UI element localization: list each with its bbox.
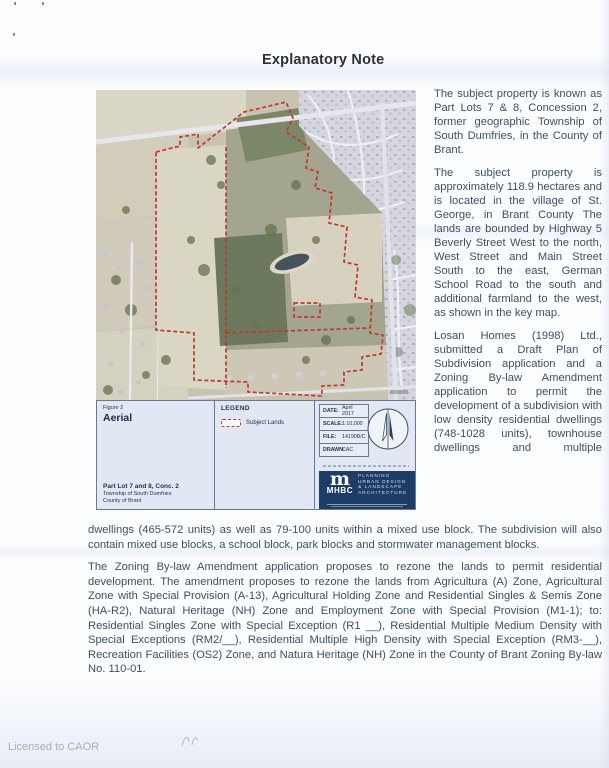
mhbc-tagline-line: ARCHITECTURE xyxy=(358,490,407,496)
scan-speck xyxy=(13,33,15,36)
figure-id-cell: Figure 2 Aerial Part Lot 7 and 8, Conc. … xyxy=(97,401,215,509)
aerial-figure: Figure 2 Aerial Part Lot 7 and 8, Conc. … xyxy=(96,90,416,510)
paragraph: The subject property is known as Part Lo… xyxy=(434,87,602,157)
mhbc-tagline: PLANNING URBAN DESIGN & LANDSCAPE ARCHIT… xyxy=(358,473,407,495)
legend-entry: Subject Lands xyxy=(221,419,308,427)
location-county: County of Brant xyxy=(103,498,179,504)
fine-print-disclaimer xyxy=(323,465,409,467)
mhbc-brand: MHBC xyxy=(327,486,353,495)
legend-cell: LEGEND Subject Lands xyxy=(215,401,315,509)
subject-lands-swatch xyxy=(221,419,241,427)
meta-label: DATE: xyxy=(323,408,342,414)
meta-label: SCALE: xyxy=(323,421,342,427)
mhbc-m-mark-icon: m xyxy=(327,473,353,486)
meta-row-date: DATE: April 2017 xyxy=(319,404,369,418)
meta-cell: DATE: April 2017 SCALE: 1:10,000 FILE: 1… xyxy=(315,401,415,509)
paragraph: The subject property is approximately 11… xyxy=(434,166,602,320)
pencil-mark xyxy=(180,732,200,750)
meta-label: FILE: xyxy=(323,434,342,440)
scan-speck xyxy=(42,2,44,5)
location-township: Township of South Dumfries xyxy=(103,491,179,497)
legend-title: LEGEND xyxy=(221,405,308,412)
aerial-photo xyxy=(96,90,416,400)
right-text-column: The subject property is known as Part Lo… xyxy=(434,87,602,464)
license-watermark: Licensed to CAOR xyxy=(8,741,99,753)
bottom-text-block: dwellings (465-572 units) as well as 79-… xyxy=(88,523,602,685)
paragraph: The Zoning By-law Amendment application … xyxy=(88,560,602,677)
page-title: Explanatory Note xyxy=(262,52,384,68)
north-arrow-icon xyxy=(366,407,410,451)
meta-value: April 2017 xyxy=(342,405,365,417)
figure-title: Aerial xyxy=(103,412,208,424)
scan-speck xyxy=(14,2,16,5)
document-page: Explanatory Note xyxy=(0,0,609,768)
meta-value: 14190B/C xyxy=(342,434,366,440)
figure-location: Part Lot 7 and 8, Conc. 2 Township of So… xyxy=(103,483,179,504)
scan-streak xyxy=(0,678,609,768)
meta-row-scale: SCALE: 1:10,000 xyxy=(319,417,369,431)
meta-table: DATE: April 2017 SCALE: 1:10,000 FILE: 1… xyxy=(319,404,369,457)
location-title: Part Lot 7 and 8, Conc. 2 xyxy=(103,483,179,490)
meta-label: DRAWN: xyxy=(323,447,342,453)
mhbc-logo-top: m MHBC PLANNING URBAN DESIGN & LANDSCAPE… xyxy=(322,473,412,495)
paragraph: Losan Homes (1998) Ltd., submitted a Dra… xyxy=(434,329,602,455)
mhbc-logo-mark-group: m MHBC xyxy=(327,473,353,495)
meta-value: CAC xyxy=(342,447,353,453)
legend-entry-label: Subject Lands xyxy=(246,420,284,426)
photo-watermark xyxy=(390,390,408,394)
meta-row-file: FILE: 14190B/C xyxy=(319,430,369,444)
paragraph: dwellings (465-572 units) as well as 79-… xyxy=(88,523,602,552)
figure-number: Figure 2 xyxy=(103,405,208,411)
mhbc-address xyxy=(322,504,412,507)
meta-value: 1:10,000 xyxy=(342,421,363,427)
meta-row-drawn: DRAWN: CAC xyxy=(319,443,369,457)
mhbc-logo: m MHBC PLANNING URBAN DESIGN & LANDSCAPE… xyxy=(319,471,415,509)
figure-title-block: Figure 2 Aerial Part Lot 7 and 8, Conc. … xyxy=(96,400,416,510)
